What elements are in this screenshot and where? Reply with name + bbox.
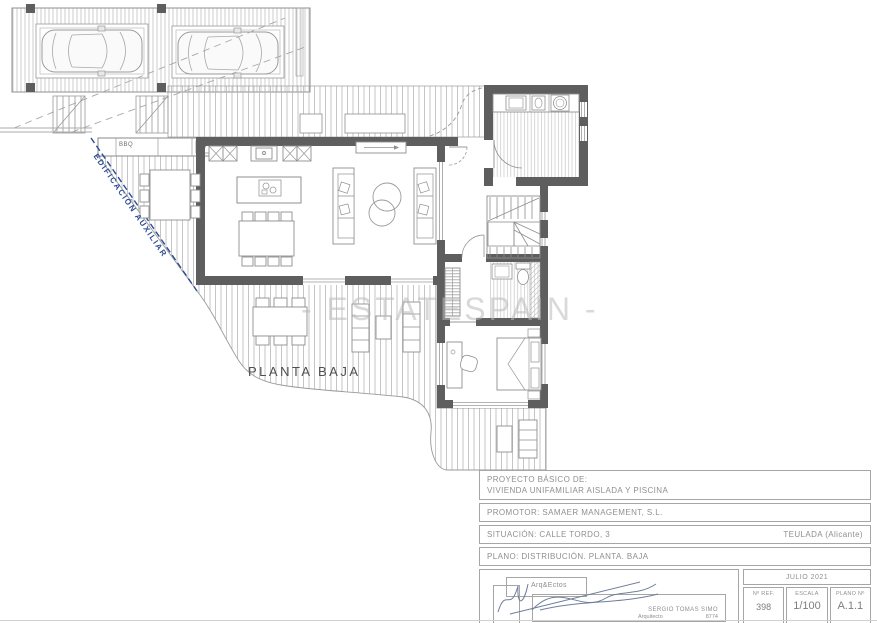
kitchen-island bbox=[237, 177, 301, 203]
ref-label: Nº REF. bbox=[744, 591, 783, 597]
utility-room bbox=[493, 94, 579, 177]
signature-and-data-row: Arq&Ectos SERGIO TOMAS SIMO Arquitecto 8… bbox=[479, 569, 871, 623]
walkway-deck bbox=[168, 86, 488, 137]
sheet-label: PLANO Nº bbox=[831, 591, 870, 597]
data-table: JULIO 2021 Nº REF. 398 ESCALA 1/100 PLAN… bbox=[743, 569, 871, 623]
entry-steps bbox=[53, 96, 168, 133]
ref-value: 398 bbox=[744, 602, 783, 612]
drawing-sheet: - ESTATESPAIN - PLANTA BAJA EDIFICACIÓN … bbox=[0, 0, 877, 623]
plan-row: PLANO: DISTRIBUCIÓN. PLANTA. BAJA bbox=[479, 547, 871, 566]
situation-text: SITUACIÓN: CALLE TORDO, 3 bbox=[487, 529, 610, 540]
project-name: VIVIENDA UNIFAMILIAR AISLADA Y PISCINA bbox=[487, 485, 863, 496]
car-icon-2 bbox=[178, 28, 278, 78]
coffee-table bbox=[369, 183, 401, 226]
kitchen-cabinets bbox=[209, 146, 311, 161]
sheet-cell: PLANO Nº A.1.1 bbox=[830, 587, 871, 623]
scale-value: 1/100 bbox=[787, 600, 826, 612]
bbq-terrace-table bbox=[140, 170, 200, 220]
car-icon bbox=[42, 26, 142, 76]
floor-label: PLANTA BAJA bbox=[248, 364, 361, 379]
entrance-door bbox=[449, 147, 467, 165]
signature-block: Arq&Ectos SERGIO TOMAS SIMO Arquitecto 8… bbox=[479, 569, 739, 623]
date-cell: JULIO 2021 bbox=[743, 569, 871, 585]
bedroom bbox=[447, 329, 541, 399]
architect-name: SERGIO TOMAS SIMO bbox=[648, 607, 718, 613]
architect-signature bbox=[480, 570, 670, 620]
scale-cell: ESCALA 1/100 bbox=[786, 587, 827, 623]
situation-row: SITUACIÓN: CALLE TORDO, 3 TEULADA (Alica… bbox=[479, 525, 871, 544]
promoter-row: PROMOTOR: SAMAER MANAGEMENT, S.L. bbox=[479, 503, 871, 522]
watermark-text: - ESTATESPAIN - bbox=[301, 291, 598, 328]
bed bbox=[497, 329, 541, 399]
sheet-bottom-edge bbox=[0, 620, 877, 621]
project-row: PROYECTO BÁSICO DE: VIVIENDA UNIFAMILIAR… bbox=[479, 470, 871, 500]
project-label: PROYECTO BÁSICO DE: bbox=[487, 474, 863, 485]
outdoor-dining-table bbox=[253, 298, 307, 345]
title-block: PROYECTO BÁSICO DE: VIVIENDA UNIFAMILIAR… bbox=[479, 470, 871, 623]
sofa-2 bbox=[414, 168, 436, 244]
desk bbox=[447, 342, 479, 388]
scale-label: ESCALA bbox=[787, 591, 826, 597]
bbq-label: BBQ bbox=[119, 142, 133, 148]
dining-table bbox=[239, 212, 294, 266]
staircase bbox=[487, 196, 540, 258]
sheet-value: A.1.1 bbox=[831, 600, 870, 612]
sideboard bbox=[356, 142, 406, 153]
ref-cell: Nº REF. 398 bbox=[743, 587, 784, 623]
location-text: TEULADA (Alicante) bbox=[783, 529, 863, 540]
sofa bbox=[333, 168, 354, 244]
